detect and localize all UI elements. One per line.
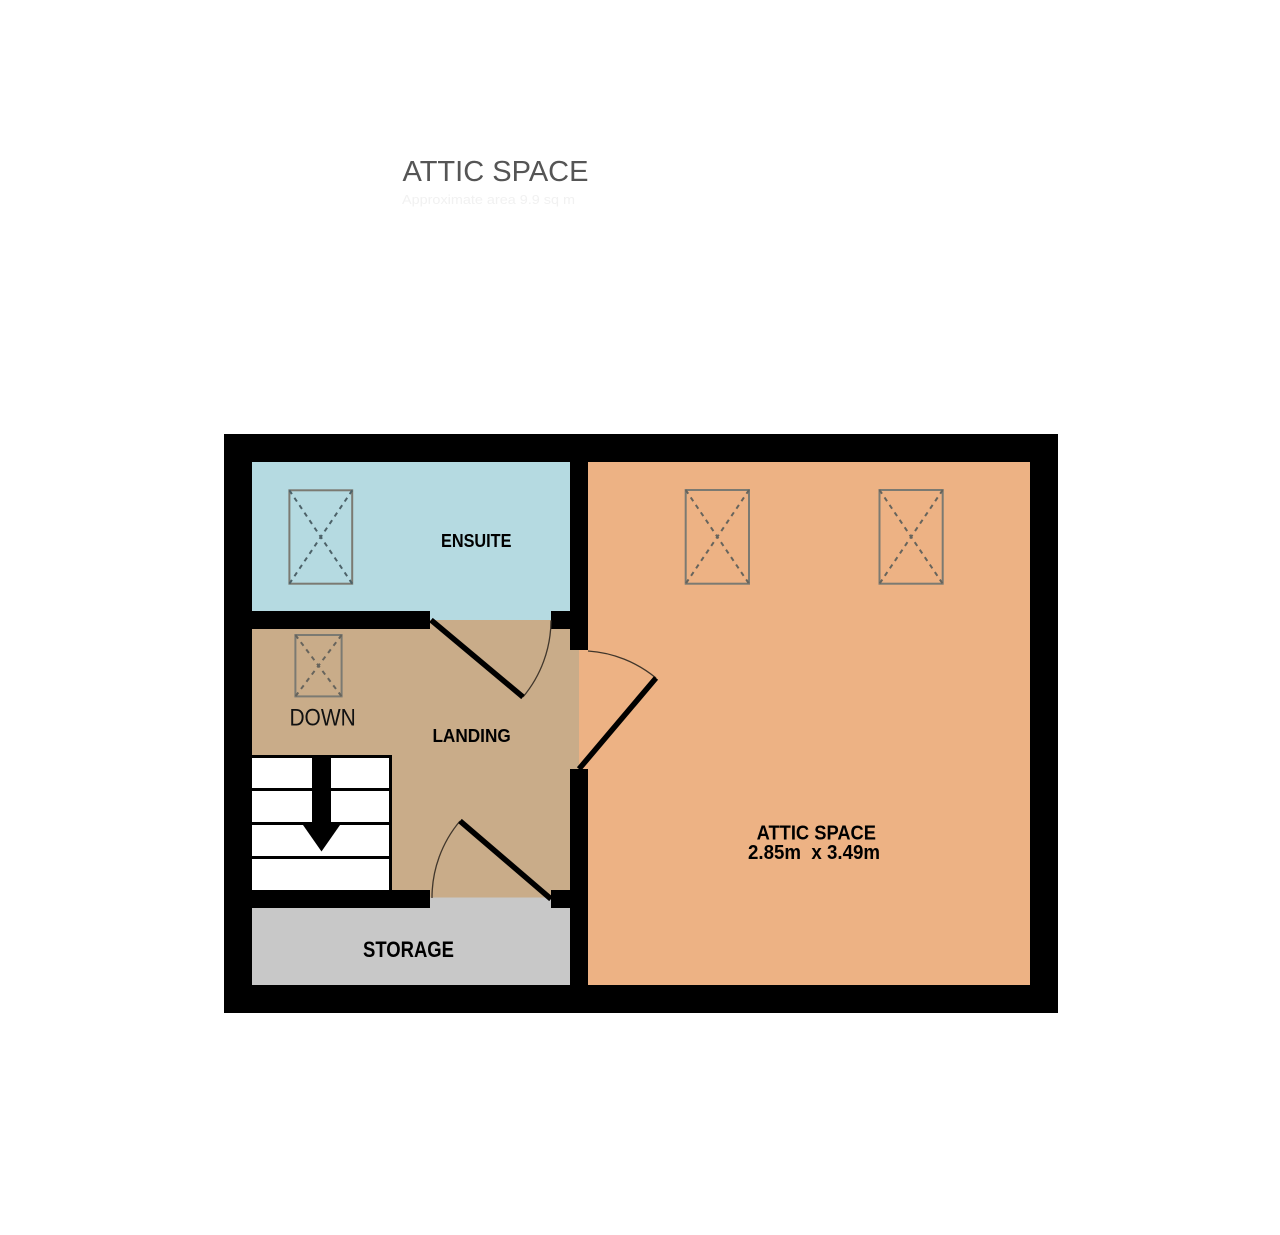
svg-text:STORAGE: STORAGE xyxy=(363,937,454,962)
svg-text:LANDING: LANDING xyxy=(432,726,510,746)
svg-text:ATTIC SPACE: ATTIC SPACE xyxy=(403,156,589,188)
svg-text:Approximate area 9.9 sq m: Approximate area 9.9 sq m xyxy=(402,192,575,207)
svg-text:DOWN: DOWN xyxy=(289,704,355,731)
svg-text:2.85m x 3.49m: 2.85m x 3.49m xyxy=(748,842,880,864)
svg-text:ENSUITE: ENSUITE xyxy=(441,531,511,551)
